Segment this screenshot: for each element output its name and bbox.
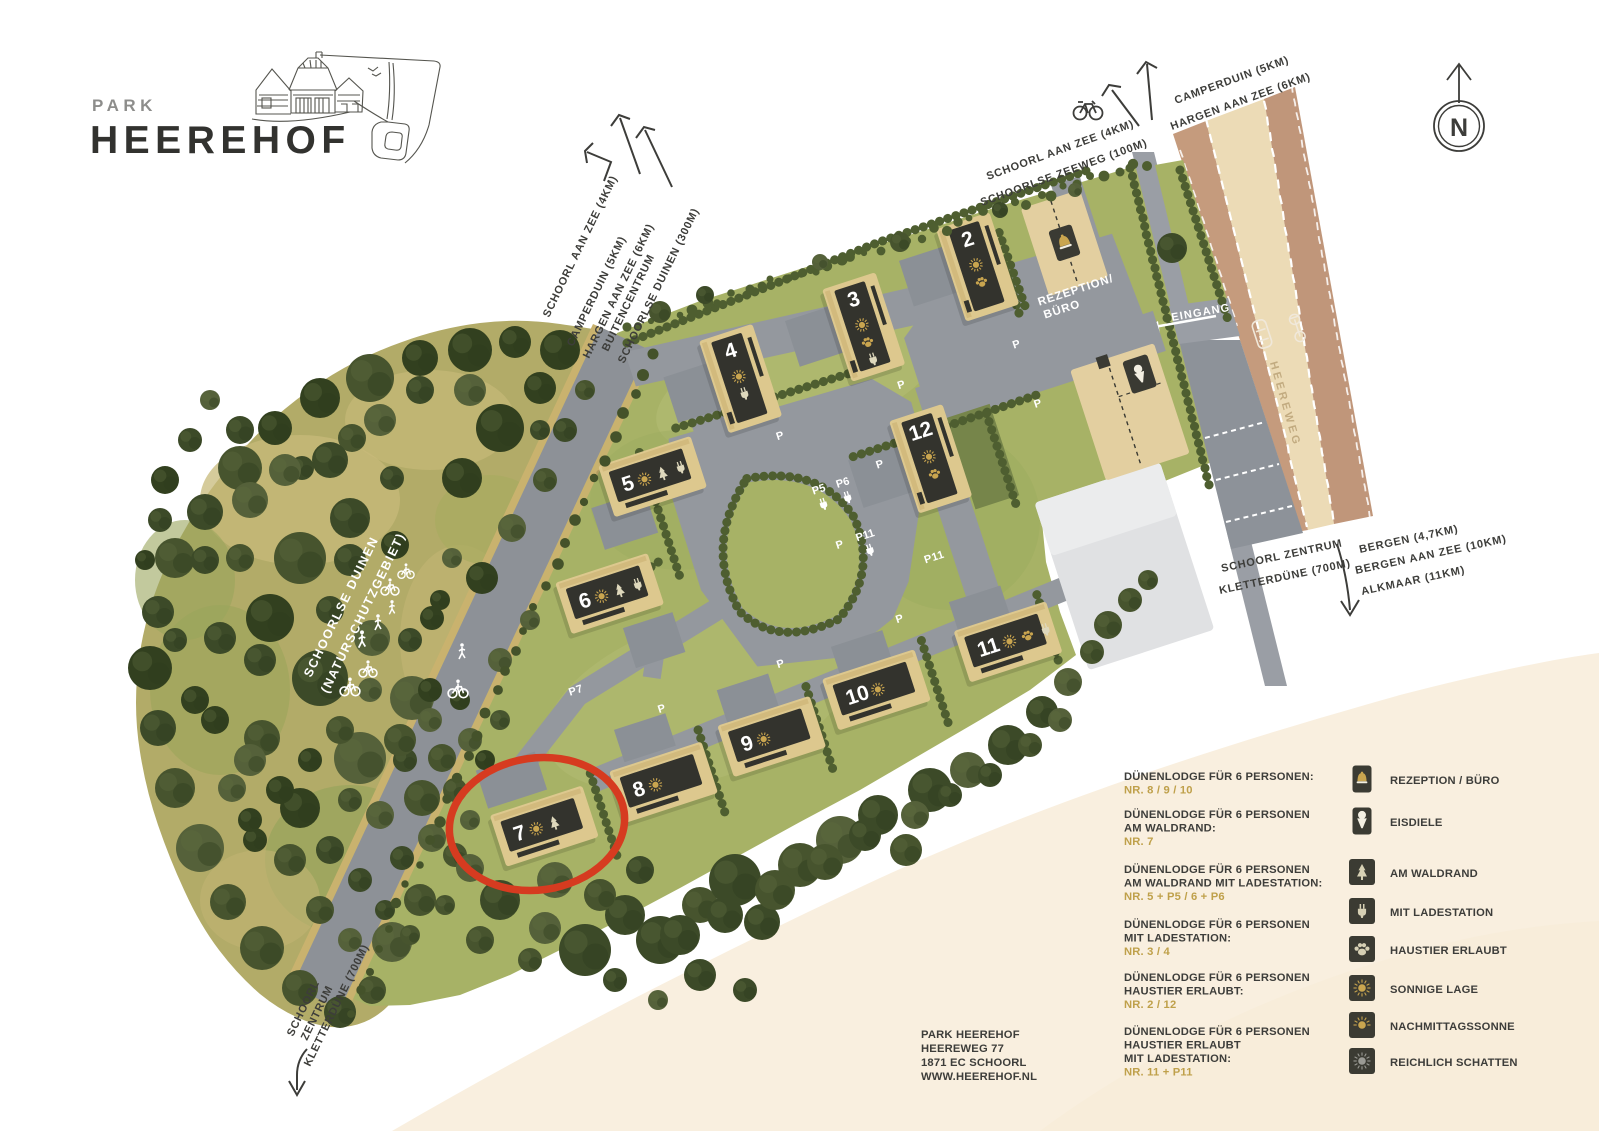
svg-text:HEEREHOF: HEEREHOF [90,119,351,162]
svg-text:DÜNENLODGE FÜR 6 PERSONEN: DÜNENLODGE FÜR 6 PERSONEN [1124,1025,1310,1038]
svg-text:NR. 8 / 9 / 10: NR. 8 / 9 / 10 [1124,785,1193,797]
svg-text:HEEREWEG 77: HEEREWEG 77 [921,1043,1004,1055]
svg-text:NR. 11 + P11: NR. 11 + P11 [1124,1067,1193,1079]
svg-text:PARK HEEREHOF: PARK HEEREHOF [921,1029,1020,1041]
svg-text:AM WALDRAND:: AM WALDRAND: [1124,823,1216,835]
svg-text:MIT LADESTATION: MIT LADESTATION [1390,907,1493,919]
svg-text:DÜNENLODGE FÜR 6 PERSONEN: DÜNENLODGE FÜR 6 PERSONEN [1124,971,1310,984]
svg-text:HAUSTIER ERLAUBT: HAUSTIER ERLAUBT [1124,1040,1241,1052]
svg-text:WWW.HEEREHOF.NL: WWW.HEEREHOF.NL [921,1071,1037,1083]
svg-text:NR. 3 / 4: NR. 3 / 4 [1124,946,1171,958]
svg-text:REZEPTION / BÜRO: REZEPTION / BÜRO [1390,774,1500,787]
svg-text:MIT LADESTATION:: MIT LADESTATION: [1124,933,1231,945]
svg-text:DÜNENLODGE FÜR 6 PERSONEN: DÜNENLODGE FÜR 6 PERSONEN [1124,808,1310,821]
svg-text:HAUSTIER ERLAUBT:: HAUSTIER ERLAUBT: [1124,986,1244,998]
svg-text:AM WALDRAND: AM WALDRAND [1390,868,1478,880]
svg-text:DÜNENLODGE FÜR 6 PERSONEN: DÜNENLODGE FÜR 6 PERSONEN [1124,918,1310,931]
svg-text:DÜNENLODGE FÜR 6 PERSONEN:: DÜNENLODGE FÜR 6 PERSONEN: [1124,770,1314,783]
svg-text:NR. 5 + P5 / 6 + P6: NR. 5 + P5 / 6 + P6 [1124,891,1225,903]
svg-text:HAUSTIER ERLAUBT: HAUSTIER ERLAUBT [1390,945,1507,957]
svg-text:NACHMITTAGSSONNE: NACHMITTAGSSONNE [1390,1021,1515,1033]
svg-text:N: N [1450,114,1468,142]
svg-text:DÜNENLODGE FÜR 6 PERSONEN: DÜNENLODGE FÜR 6 PERSONEN [1124,863,1310,876]
svg-text:1871 EC SCHOORL: 1871 EC SCHOORL [921,1057,1027,1069]
svg-text:NR. 7: NR. 7 [1124,836,1154,848]
svg-text:REICHLICH SCHATTEN: REICHLICH SCHATTEN [1390,1057,1518,1069]
svg-text:AM WALDRAND MIT LADESTATION:: AM WALDRAND MIT LADESTATION: [1124,878,1322,890]
svg-text:MIT LADESTATION:: MIT LADESTATION: [1124,1053,1231,1065]
svg-text:NR. 2 / 12: NR. 2 / 12 [1124,999,1176,1011]
svg-text:PARK: PARK [92,96,157,115]
svg-text:EISDIELE: EISDIELE [1390,817,1443,829]
svg-text:SONNIGE LAGE: SONNIGE LAGE [1390,984,1479,996]
